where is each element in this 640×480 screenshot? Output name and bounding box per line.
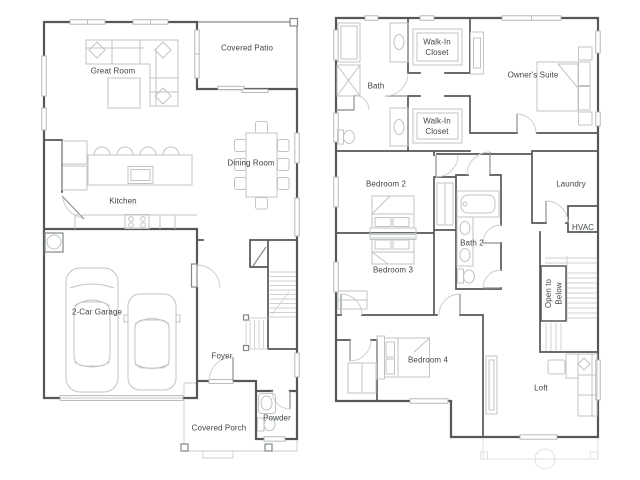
- dining-chair: [256, 198, 268, 210]
- bath2-toilet-door: [483, 270, 501, 288]
- bath2-fixtures: [457, 191, 499, 283]
- bedroom4-closet-shelving: [348, 363, 376, 393]
- window: [295, 198, 299, 236]
- window: [596, 112, 600, 126]
- dining-chair: [278, 159, 290, 171]
- dining-chair: [278, 178, 290, 190]
- room-label-owners-suite: Owner's Suite: [508, 71, 559, 80]
- covered-patio-outline: [197, 19, 298, 90]
- roof-outline-below: [481, 437, 599, 469]
- sliding-door: [218, 86, 244, 89]
- window: [295, 353, 299, 377]
- sliding-door: [242, 89, 268, 92]
- room-label-great-room: Great Room: [91, 67, 136, 76]
- kitchen-counter: [75, 215, 197, 230]
- room-label-bath-2: Bath 2: [460, 239, 484, 248]
- media-console: [486, 356, 497, 414]
- window: [365, 16, 378, 20]
- window: [410, 399, 448, 403]
- pillow: [579, 62, 591, 86]
- toilet-nook-door: [354, 95, 369, 110]
- bath-door: [385, 73, 408, 96]
- room-label-open-to-below-line2: Below: [555, 282, 564, 304]
- room-label-bedroom-4: Bedroom 4: [408, 356, 448, 365]
- nightstand: [579, 47, 593, 60]
- window: [420, 16, 434, 20]
- coffee-table: [108, 78, 140, 108]
- room-label-walk-in-closet-1-line1: Walk-In: [423, 38, 451, 47]
- room-label-garage: 2-Car Garage: [72, 308, 123, 317]
- staircase: [244, 272, 297, 351]
- room-label-bedroom-3: Bedroom 3: [373, 266, 413, 275]
- bedroom4-door: [439, 294, 460, 315]
- nightstand: [579, 112, 593, 125]
- bedroom2-bed: [370, 196, 416, 235]
- vanity-sink: [390, 108, 408, 146]
- window: [596, 31, 600, 53]
- bedroom2-closet: [437, 183, 453, 225]
- pantry-door: [62, 196, 84, 219]
- stair-post: [244, 315, 249, 320]
- porch-post: [265, 444, 272, 451]
- powder-fixtures: [258, 394, 276, 432]
- pillow: [393, 218, 409, 227]
- garage-entry-door: [192, 264, 221, 288]
- room-label-dining-room: Dining Room: [227, 159, 275, 168]
- room-label-covered-porch: Covered Porch: [192, 424, 247, 433]
- room-label-kitchen: Kitchen: [109, 197, 136, 206]
- bedroom3-door: [341, 294, 362, 315]
- room-label-walk-in-closet-1-line2: Closet: [425, 48, 449, 57]
- bath2-door: [467, 152, 490, 175]
- room-label-open-to-below-line1: Open to: [544, 278, 553, 308]
- exterior-walls: [44, 22, 297, 439]
- window: [334, 177, 338, 207]
- pillow: [375, 240, 391, 249]
- window: [42, 56, 46, 96]
- pillow: [579, 87, 591, 111]
- window: [520, 435, 557, 439]
- room-label-foyer: Foyer: [212, 352, 233, 361]
- room-label-loft: Loft: [534, 384, 548, 393]
- chaise: [566, 354, 578, 378]
- dining-chair: [235, 178, 247, 190]
- water-heater: [45, 233, 63, 252]
- bedroom3-bed: [370, 234, 416, 265]
- owners-suite-door: [517, 114, 536, 133]
- toilet: [338, 130, 355, 144]
- window: [42, 108, 46, 130]
- car: [124, 294, 180, 390]
- bar-stools: [94, 147, 179, 155]
- bedroom2-door: [436, 155, 458, 177]
- floor-plan-svg: Great Room Covered Patio Dining Room Kit…: [0, 0, 640, 480]
- porch-step: [203, 451, 233, 458]
- understair-closet-door: [253, 247, 266, 266]
- window: [596, 360, 600, 400]
- stair-post: [244, 346, 249, 351]
- laundry-door: [546, 201, 568, 223]
- window: [264, 437, 285, 441]
- dining-chair: [256, 122, 268, 134]
- shower: [338, 23, 360, 62]
- porch-post: [181, 444, 188, 451]
- room-label-laundry: Laundry: [556, 180, 586, 189]
- dresser: [471, 32, 484, 74]
- floor-plan-image: Great Room Covered Patio Dining Room Kit…: [0, 0, 640, 480]
- window: [334, 262, 338, 292]
- room-label-hvac: HVAC: [572, 223, 594, 232]
- window: [295, 133, 299, 163]
- bathtub: [457, 191, 499, 217]
- ottoman: [548, 360, 565, 374]
- kitchen-island: [88, 147, 192, 185]
- room-label-walk-in-closet-2-line2: Closet: [425, 127, 449, 136]
- room-label-powder: Powder: [263, 414, 291, 423]
- pillow: [386, 359, 395, 374]
- linen-closet: [337, 65, 360, 96]
- bed: [537, 47, 592, 125]
- patio-post: [290, 19, 298, 27]
- front-door: [209, 357, 233, 383]
- first-floor-labels: Great Room Covered Patio Dining Room Kit…: [72, 44, 291, 433]
- room-label-covered-patio: Covered Patio: [221, 44, 273, 53]
- dining-chair: [235, 140, 247, 152]
- sofa: [566, 354, 597, 416]
- pillow: [386, 342, 395, 357]
- dining-chair: [278, 140, 290, 152]
- pillow: [375, 218, 391, 227]
- car: [66, 268, 118, 392]
- bath2-inner-door: [483, 225, 501, 243]
- room-label-bedroom-2: Bedroom 2: [366, 180, 406, 189]
- vanity-sink: [390, 23, 408, 62]
- first-floor-plan: Great Room Covered Patio Dining Room Kit…: [42, 19, 299, 459]
- room-label-bath: Bath: [368, 82, 385, 91]
- bedroom4-closet-door: [350, 340, 371, 361]
- refrigerator: [62, 141, 87, 190]
- toilet: [458, 269, 475, 283]
- pillow: [393, 240, 409, 249]
- windows: [42, 20, 299, 441]
- second-floor-plan: Bath Walk-In Closet Owner's Suite Walk-I…: [334, 16, 600, 469]
- room-label-walk-in-closet-2-line1: Walk-In: [423, 117, 451, 126]
